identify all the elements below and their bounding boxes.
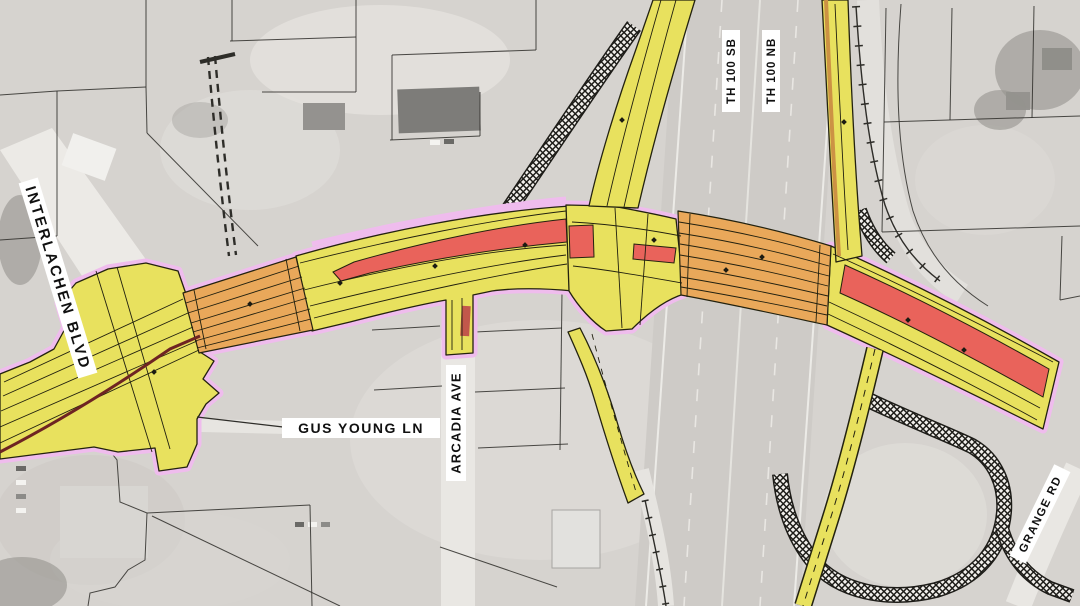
label-th100-sb: TH 100 SB <box>722 30 740 112</box>
svg-text:ARCADIA AVE: ARCADIA AVE <box>449 372 464 474</box>
svg-text:GUS YOUNG LN: GUS YOUNG LN <box>298 420 424 436</box>
label-th100-nb: TH 100 NB <box>762 30 780 112</box>
svg-text:TH 100 NB: TH 100 NB <box>766 38 778 105</box>
plan-map: INTERLACHEN BLVD GUS YOUNG LN ARCADIA AV… <box>0 0 1080 606</box>
label-arcadia-ave: ARCADIA AVE <box>446 365 466 481</box>
label-gus-young-ln: GUS YOUNG LN <box>282 418 440 438</box>
svg-text:TH 100 SB: TH 100 SB <box>726 38 738 104</box>
